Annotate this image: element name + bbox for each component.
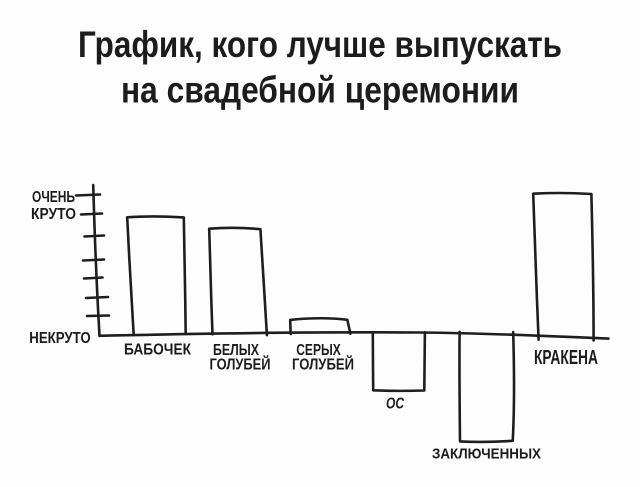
- svg-text:ЗАКЛЮЧЕННЫХ: ЗАКЛЮЧЕННЫХ: [432, 445, 541, 462]
- svg-text:ОС: ОС: [386, 396, 404, 413]
- svg-text:ГОЛУБЕЙ: ГОЛУБЕЙ: [210, 355, 271, 374]
- svg-text:НЕКРУТО: НЕКРУТО: [29, 330, 91, 347]
- svg-text:КРАКЕНА: КРАКЕНА: [534, 347, 598, 369]
- svg-text:ОЧЕНЬ: ОЧЕНЬ: [32, 189, 75, 206]
- svg-text:БАБОЧЕК: БАБОЧЕК: [124, 342, 191, 359]
- svg-text:на свадебной церемонии: на свадебной церемонии: [121, 70, 519, 111]
- svg-text:ГОЛУБЕЙ: ГОЛУБЕЙ: [292, 355, 354, 374]
- svg-text:График, кого лучше выпускать: График, кого лучше выпускать: [78, 24, 562, 65]
- svg-text:КРУТО: КРУТО: [31, 206, 76, 223]
